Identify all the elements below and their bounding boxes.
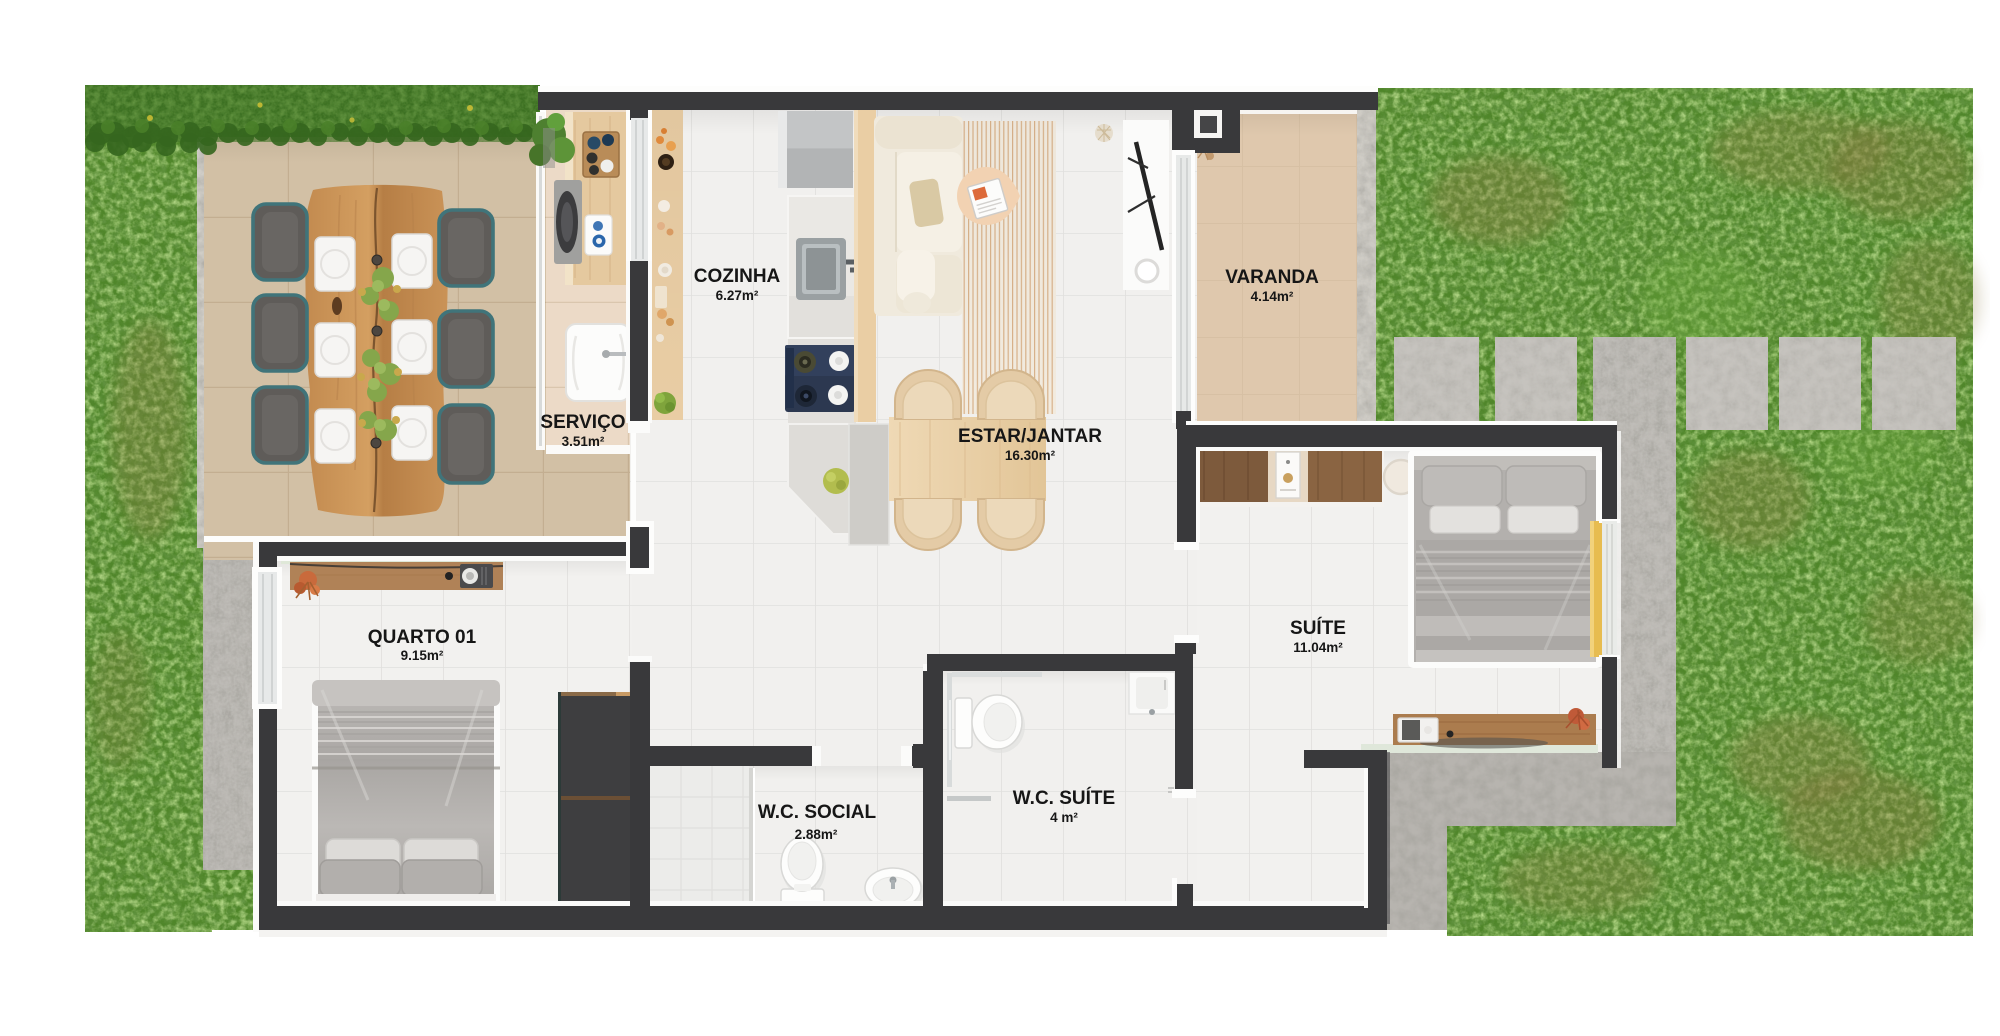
svg-text:9.15m²: 9.15m² [401,648,444,663]
svg-text:6.27m²: 6.27m² [716,288,759,303]
svg-text:3.51m²: 3.51m² [562,434,605,449]
svg-text:11.04m²: 11.04m² [1293,640,1343,655]
svg-text:VARANDA: VARANDA [1225,267,1319,288]
svg-text:QUARTO 01: QUARTO 01 [368,627,477,648]
svg-text:SUÍTE: SUÍTE [1290,617,1346,639]
svg-text:W.C. SUÍTE: W.C. SUÍTE [1013,787,1115,809]
svg-text:4.14m²: 4.14m² [1251,289,1294,304]
svg-text:SERVIÇO: SERVIÇO [540,412,625,433]
svg-text:COZINHA: COZINHA [694,266,781,287]
svg-text:4 m²: 4 m² [1050,810,1078,825]
svg-text:16.30m²: 16.30m² [1005,448,1056,463]
svg-text:ESTAR/JANTAR: ESTAR/JANTAR [958,426,1102,447]
svg-text:2.88m²: 2.88m² [795,827,838,842]
svg-text:W.C. SOCIAL: W.C. SOCIAL [758,802,877,823]
